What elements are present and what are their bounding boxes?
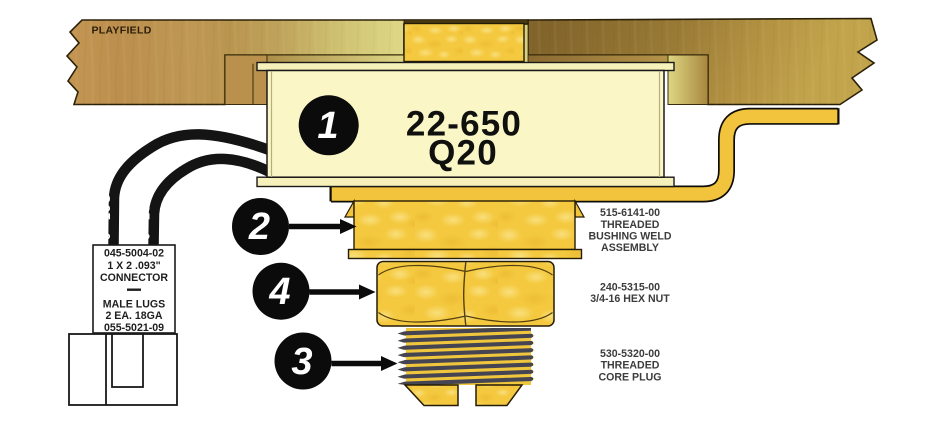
svg-text:530-5320-00: 530-5320-00 (600, 348, 660, 360)
svg-text:2 EA. 18GA: 2 EA. 18GA (105, 310, 162, 322)
svg-text:1 X 2 .093": 1 X 2 .093" (107, 260, 160, 272)
svg-text:4: 4 (268, 271, 290, 313)
svg-text:MALE LUGS: MALE LUGS (103, 299, 165, 311)
svg-text:2: 2 (248, 206, 270, 248)
svg-text:BUSHING WELD: BUSHING WELD (589, 231, 672, 243)
svg-text:240-5315-00: 240-5315-00 (600, 282, 660, 294)
svg-text:PLAYFIELD: PLAYFIELD (92, 25, 152, 37)
svg-text:3/4-16 HEX NUT: 3/4-16 HEX NUT (590, 293, 670, 305)
svg-text:CONNECTOR: CONNECTOR (100, 272, 168, 284)
svg-text:055-5021-09: 055-5021-09 (104, 322, 164, 334)
svg-text:1: 1 (317, 105, 338, 147)
svg-text:Q20: Q20 (428, 134, 498, 173)
svg-text:ASSEMBLY: ASSEMBLY (601, 242, 659, 254)
svg-text:CORE PLUG: CORE PLUG (599, 372, 662, 384)
svg-text:3: 3 (291, 341, 312, 383)
svg-text:THREADED: THREADED (601, 219, 660, 231)
svg-text:515-6141-00: 515-6141-00 (600, 207, 660, 219)
svg-text:6" 18G: 6" 18G (99, 194, 113, 240)
svg-text:6" 18G: 6" 18G (139, 194, 153, 240)
svg-text:THREADED: THREADED (601, 360, 660, 372)
svg-text:045-5004-02: 045-5004-02 (104, 248, 164, 260)
